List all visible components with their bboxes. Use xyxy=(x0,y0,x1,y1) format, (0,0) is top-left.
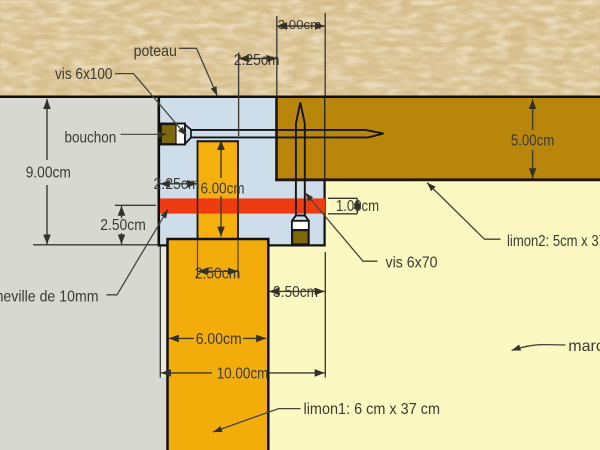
svg-text:9.00cm: 9.00cm xyxy=(26,165,71,182)
svg-text:limon1: 6 cm x 37 cm: limon1: 6 cm x 37 cm xyxy=(304,401,441,418)
svg-text:2.50cm: 2.50cm xyxy=(195,265,241,282)
svg-text:marche: marche xyxy=(568,338,600,355)
svg-text:poteau: poteau xyxy=(134,43,177,60)
svg-text:2.50cm: 2.50cm xyxy=(100,217,146,234)
svg-text:6.00cm: 6.00cm xyxy=(201,180,245,197)
svg-text:3.50cm: 3.50cm xyxy=(273,284,318,301)
svg-text:cheville de 10mm: cheville de 10mm xyxy=(0,288,99,305)
svg-text:10.00cm: 10.00cm xyxy=(217,365,269,382)
svg-text:bouchon: bouchon xyxy=(65,129,117,146)
svg-text:vis 6x70: vis 6x70 xyxy=(386,255,438,272)
svg-text:6.00cm: 6.00cm xyxy=(196,331,242,348)
svg-text:2.25cm: 2.25cm xyxy=(234,52,280,69)
svg-text:5.00cm: 5.00cm xyxy=(511,132,554,149)
svg-text:3.00cm: 3.00cm xyxy=(278,17,322,32)
svg-text:vis 6x100: vis 6x100 xyxy=(55,66,113,83)
svg-text:limon2: 5cm x 37 cm: limon2: 5cm x 37 cm xyxy=(507,233,600,250)
